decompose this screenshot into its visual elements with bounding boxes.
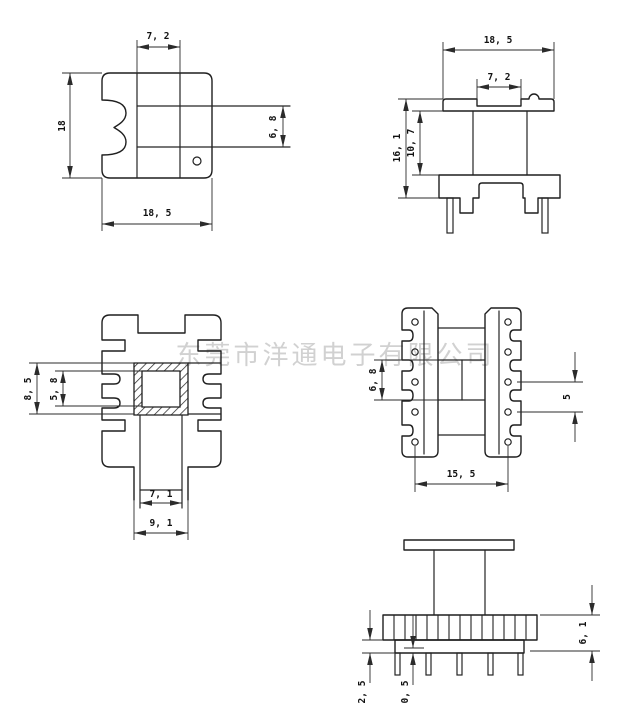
dim-front-height: 18 xyxy=(57,73,102,178)
section-tube-hatched xyxy=(134,363,188,415)
front-body-outline xyxy=(102,73,212,178)
profile-comb-teeth xyxy=(394,615,526,640)
bottom-right-flange xyxy=(485,308,521,457)
dim-profile-step: 0, 5 xyxy=(400,615,424,703)
dim-label: 9, 1 xyxy=(150,518,173,529)
dim-profile-base-height: 2, 5 xyxy=(357,610,395,703)
dim-side-notch-width: 7, 2 xyxy=(477,72,521,106)
front-pilot-hole xyxy=(193,157,201,165)
dim-label: 10, 7 xyxy=(406,129,417,158)
dim-side-winding-height: 10, 7 xyxy=(406,111,443,175)
watermark-text: 东莞市洋通电子有限公司 xyxy=(175,341,494,371)
engineering-drawing-page: 东莞市洋通电子有限公司 7, 2 18 6, 8 18, 5 xyxy=(0,0,627,710)
dim-section-channel-outer: 9, 1 xyxy=(134,500,188,540)
dim-label: 0, 5 xyxy=(400,680,411,703)
dim-label: 7, 2 xyxy=(147,31,170,42)
side-top-flange xyxy=(443,94,554,111)
dim-side-flange-width: 18, 5 xyxy=(443,35,554,99)
dim-label: 18, 5 xyxy=(143,208,172,219)
dim-label: 6, 1 xyxy=(578,621,589,644)
profile-base-band xyxy=(395,640,524,653)
dim-label: 16, 1 xyxy=(392,133,403,162)
dim-bottom-pin-row-span: 15, 5 xyxy=(415,446,508,492)
dim-section-channel-inner: 7, 1 xyxy=(140,489,182,503)
dim-label: 7, 2 xyxy=(488,72,511,83)
profile-pins xyxy=(395,653,523,675)
dim-profile-flange-height: 6, 1 xyxy=(530,585,600,681)
dim-label: 18, 5 xyxy=(484,35,513,46)
side-pin-left xyxy=(447,198,453,233)
profile-top-flange xyxy=(404,540,514,550)
dim-front-width: 18, 5 xyxy=(102,178,212,231)
dim-label: 7, 1 xyxy=(150,489,173,500)
dim-label: 8, 5 xyxy=(23,377,34,400)
dim-bottom-pin-pitch: 5 xyxy=(517,352,583,442)
dim-label: 5, 8 xyxy=(49,377,60,400)
dim-section-tube-inner: 5, 8 xyxy=(49,371,142,406)
dim-label: 5 xyxy=(562,394,573,400)
side-view: 18, 5 7, 2 16, 1 10, 7 xyxy=(392,35,560,233)
dim-front-window-width: 7, 2 xyxy=(137,31,180,73)
front-view: 7, 2 18 6, 8 18, 5 xyxy=(57,31,290,231)
dim-side-total-height: 16, 1 xyxy=(392,99,443,198)
drawing-canvas: 东莞市洋通电子有限公司 7, 2 18 6, 8 18, 5 xyxy=(0,0,627,710)
dim-label: 6, 8 xyxy=(368,368,379,391)
dim-label: 18 xyxy=(57,120,68,132)
dim-label: 2, 5 xyxy=(357,680,368,703)
bottom-left-flange xyxy=(402,308,438,457)
bottom-view: 6, 8 5 15, 5 xyxy=(368,308,583,492)
dim-label: 15, 5 xyxy=(447,469,476,480)
dim-front-window-height: 6, 8 xyxy=(268,106,283,147)
side-pin-right xyxy=(542,198,548,233)
dim-label: 6, 8 xyxy=(268,115,279,138)
profile-view: 6, 1 2, 5 0, 5 xyxy=(357,540,600,703)
